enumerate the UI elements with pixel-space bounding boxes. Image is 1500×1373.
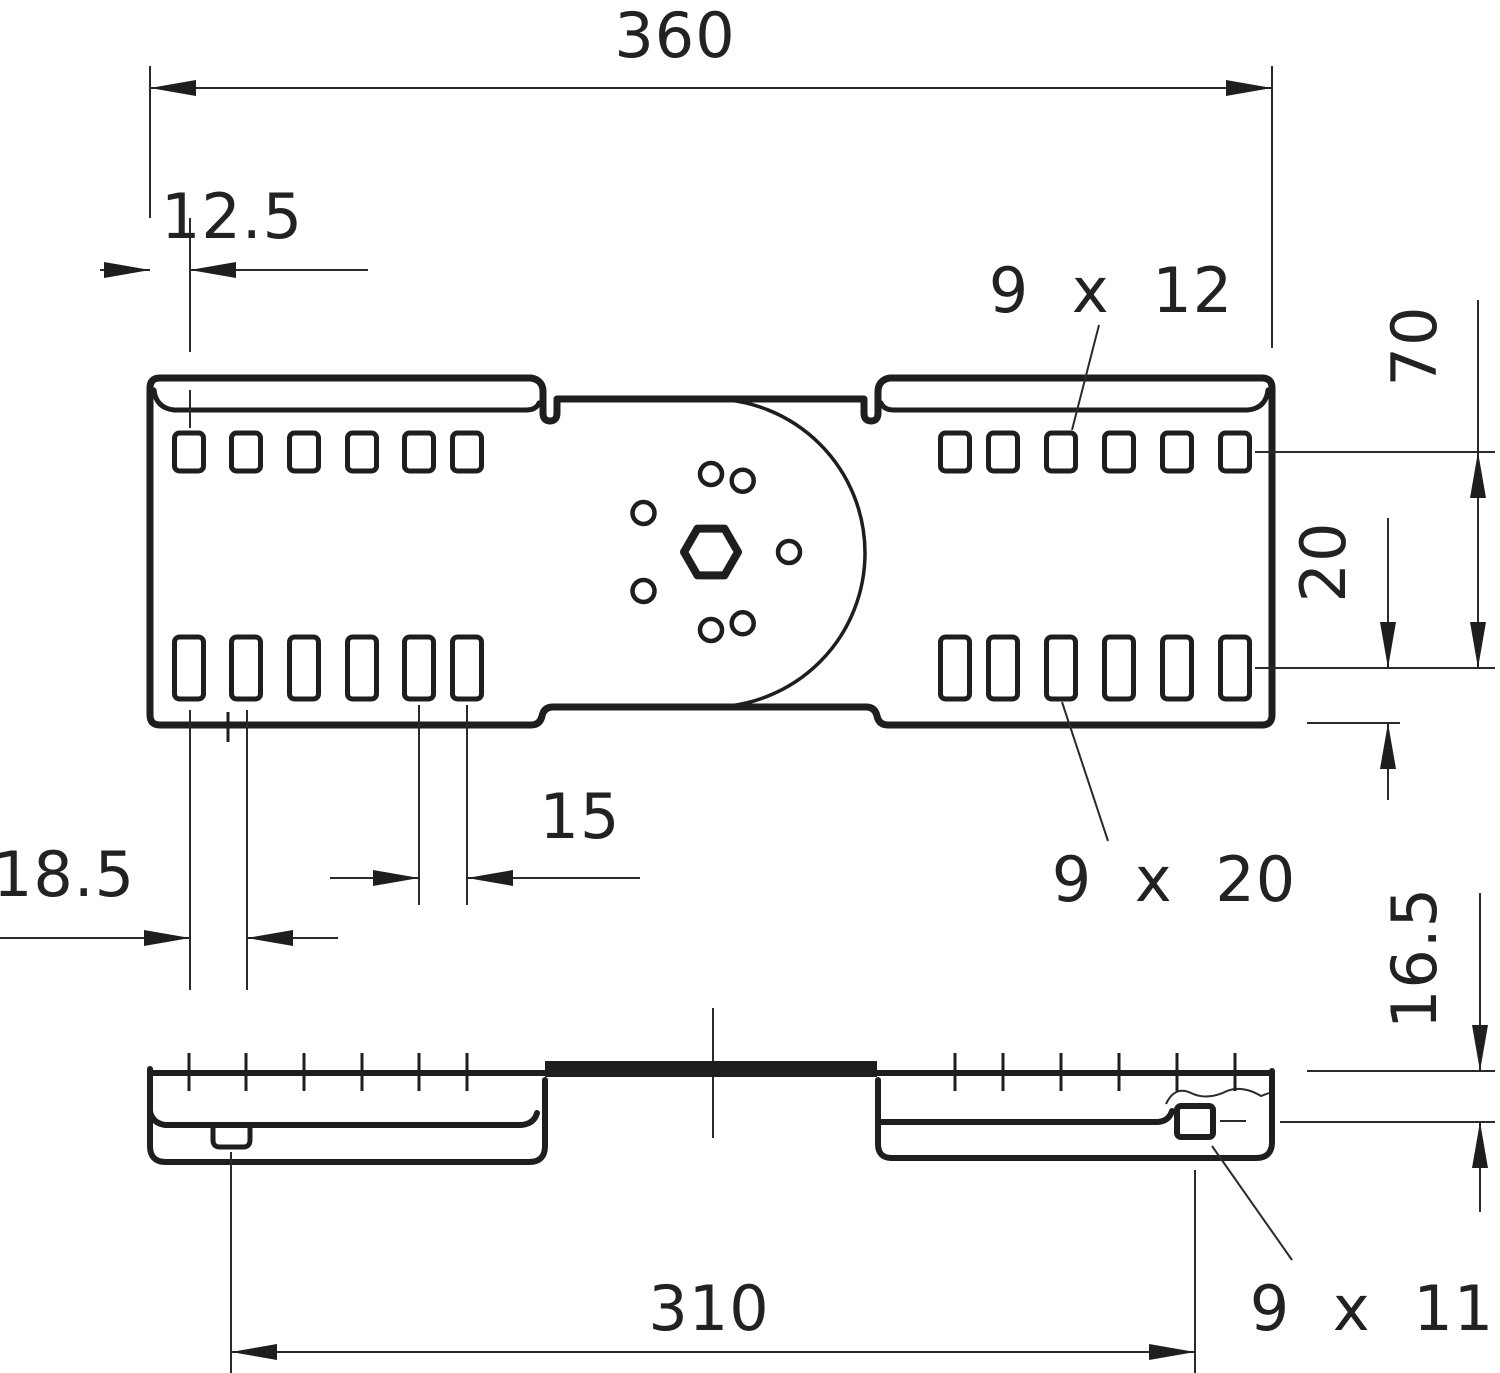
arrowhead: [104, 262, 150, 278]
dim-label-16-5: 16.5: [1378, 887, 1451, 1029]
left-channel-clip: [213, 1126, 250, 1147]
arrowhead: [467, 870, 513, 886]
top-slot: [989, 433, 1018, 471]
pivot-hole: [633, 580, 655, 602]
bottom-slot: [348, 637, 377, 699]
arrowhead: [1380, 723, 1396, 769]
dim-fixing-centers: 310: [231, 1152, 1195, 1373]
arrowhead: [1380, 622, 1396, 668]
drawing-canvas: 360 12.5 9 x 12 70 20 9 x 20: [0, 0, 1500, 1373]
dim-label-360: 360: [614, 0, 735, 72]
arrowhead: [231, 1344, 277, 1360]
dim-top-slot-size: 9 x 12: [989, 254, 1233, 430]
dim-edge-to-first-top-slot: 12.5: [100, 180, 368, 428]
leader-line: [1212, 1146, 1292, 1260]
bottom-slot: [405, 637, 434, 699]
arrowhead: [144, 930, 190, 946]
break-line: [1166, 1089, 1269, 1104]
dim-bottom-row-to-edge: 20: [1287, 518, 1400, 800]
top-slot: [941, 433, 970, 471]
dim-label-9x12: 9 x 12: [989, 254, 1233, 327]
dim-profile-step-height: 16.5: [1280, 887, 1495, 1212]
bottom-slot: [989, 637, 1018, 699]
dim-label-9x20: 9 x 20: [1052, 843, 1296, 916]
dim-first-bottom-slot-pitch: 18.5: [0, 710, 338, 990]
bottom-slot: [1105, 637, 1134, 699]
side-cutout-9x11: [1177, 1106, 1213, 1137]
top-slot: [1163, 433, 1192, 471]
pivot-hole: [778, 541, 800, 563]
bottom-slot: [175, 637, 204, 699]
arrowhead: [247, 930, 293, 946]
pivot-hole: [732, 612, 754, 634]
bottom-slot: [1047, 637, 1076, 699]
dim-label-12-5: 12.5: [161, 180, 303, 253]
pivot-hole: [700, 619, 722, 641]
top-slot: [405, 433, 434, 471]
pivot-hole: [633, 502, 655, 524]
arrowhead: [1226, 80, 1272, 96]
bottom-slot: [941, 637, 970, 699]
hex-nut: [684, 529, 738, 576]
top-slot: [348, 433, 377, 471]
arrowhead: [1472, 1122, 1488, 1168]
top-slot: [1221, 433, 1250, 471]
top-slot: [1105, 433, 1134, 471]
pivot-hole: [700, 463, 722, 485]
right-channel-inner-line: [878, 1111, 1172, 1122]
middle-plate-edge: [545, 1061, 877, 1077]
dim-slot-pair-pitch: 15: [330, 705, 640, 905]
dim-bottom-slot-size: 9 x 20: [1052, 702, 1296, 916]
bottom-slot: [453, 637, 482, 699]
flange-inner-line-right: [881, 390, 1268, 410]
left-channel-inner-line: [150, 1111, 537, 1125]
top-slot: [290, 433, 319, 471]
top-view: [150, 378, 1272, 742]
bottom-slot: [232, 637, 261, 699]
top-slot: [453, 433, 482, 471]
arrowhead: [373, 870, 419, 886]
left-channel-outline: [150, 1069, 545, 1162]
arrowhead: [1149, 1344, 1195, 1360]
side-view: [150, 1008, 1272, 1162]
dim-label-15: 15: [540, 780, 621, 853]
top-slot: [1047, 433, 1076, 471]
arrowhead: [190, 262, 236, 278]
engineering-drawing: 360 12.5 9 x 12 70 20 9 x 20: [0, 0, 1500, 1373]
arrowhead: [150, 80, 196, 96]
dim-side-cutout-size: 9 x 11: [1212, 1146, 1494, 1345]
dim-slot-row-spacing: 70: [1255, 300, 1495, 668]
dim-label-70: 70: [1378, 306, 1451, 387]
dim-label-20: 20: [1287, 522, 1360, 603]
arrowhead: [1472, 1025, 1488, 1071]
bottom-slot: [290, 637, 319, 699]
top-slot: [175, 433, 204, 471]
dim-label-9x11: 9 x 11: [1250, 1272, 1494, 1345]
dim-label-310: 310: [648, 1272, 769, 1345]
bottom-slot: [1221, 637, 1250, 699]
arrowhead: [1470, 622, 1486, 668]
flange-inner-line-left: [154, 390, 539, 410]
top-slot: [232, 433, 261, 471]
bottom-slot: [1163, 637, 1192, 699]
pivot-hole: [732, 470, 754, 492]
dim-label-18-5: 18.5: [0, 838, 135, 911]
arrowhead: [1470, 452, 1486, 498]
